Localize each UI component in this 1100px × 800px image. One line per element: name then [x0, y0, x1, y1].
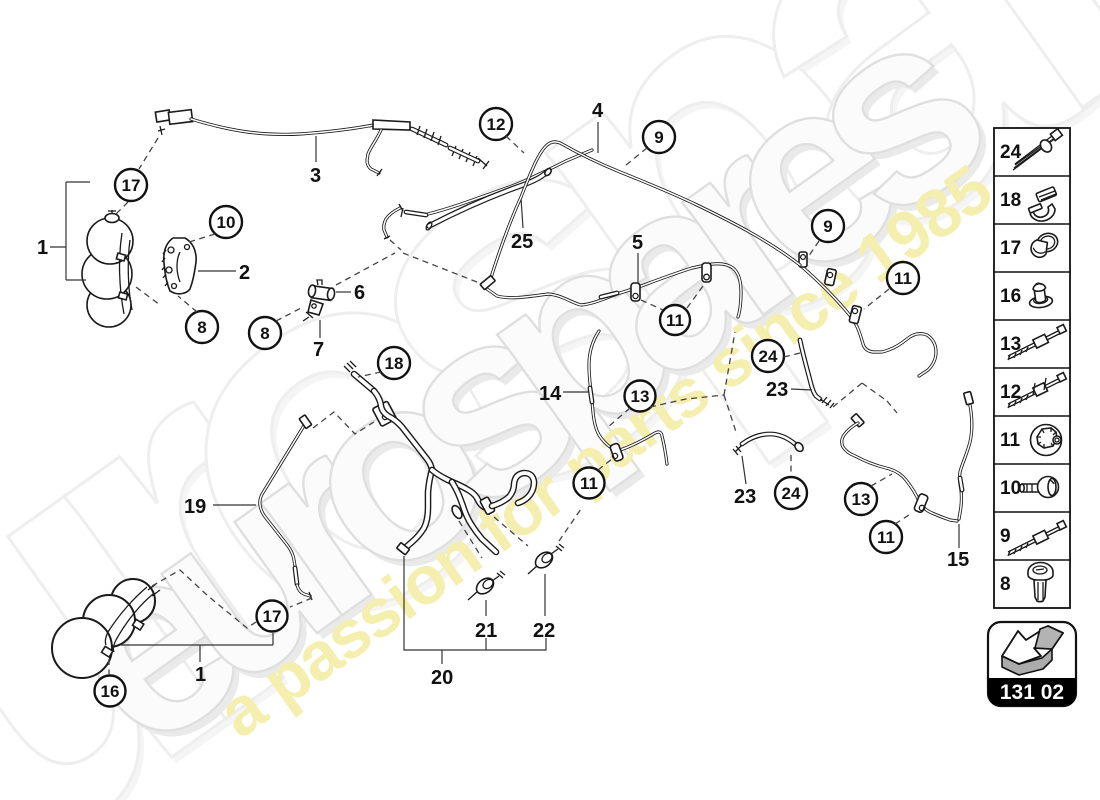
svg-text:11: 11 — [877, 528, 895, 547]
svg-text:16: 16 — [101, 682, 120, 701]
svg-text:8: 8 — [260, 324, 269, 343]
svg-text:2: 2 — [239, 262, 250, 284]
svg-text:131 02: 131 02 — [1000, 681, 1064, 704]
svg-text:7: 7 — [313, 339, 324, 361]
svg-text:18: 18 — [1000, 190, 1021, 211]
svg-text:18: 18 — [385, 354, 404, 373]
svg-text:17: 17 — [1000, 238, 1021, 259]
svg-text:24: 24 — [759, 347, 778, 366]
svg-text:13: 13 — [631, 387, 650, 406]
svg-text:13: 13 — [1000, 334, 1021, 355]
svg-text:1: 1 — [37, 237, 48, 259]
svg-text:10: 10 — [217, 213, 236, 232]
svg-text:22: 22 — [533, 620, 555, 642]
svg-text:20: 20 — [431, 667, 453, 689]
svg-text:6: 6 — [354, 282, 365, 304]
svg-text:12: 12 — [1000, 382, 1021, 403]
svg-text:16: 16 — [1000, 286, 1021, 307]
svg-text:17: 17 — [263, 607, 282, 626]
svg-text:14: 14 — [539, 383, 562, 405]
svg-text:23: 23 — [734, 486, 756, 508]
svg-text:11: 11 — [666, 311, 684, 330]
svg-text:5: 5 — [632, 232, 643, 254]
svg-text:11: 11 — [1000, 430, 1021, 451]
svg-text:4: 4 — [592, 100, 604, 122]
svg-text:24: 24 — [782, 484, 801, 503]
svg-text:1: 1 — [195, 664, 206, 686]
svg-text:15: 15 — [947, 549, 969, 571]
svg-text:25: 25 — [511, 231, 533, 253]
svg-text:9: 9 — [654, 128, 663, 147]
svg-text:17: 17 — [122, 176, 141, 195]
svg-text:12: 12 — [487, 115, 506, 134]
svg-text:9: 9 — [1000, 526, 1011, 547]
svg-text:10: 10 — [1000, 478, 1021, 499]
svg-text:11: 11 — [580, 474, 598, 493]
svg-text:23: 23 — [766, 379, 788, 401]
svg-text:24: 24 — [1000, 142, 1022, 163]
svg-text:11: 11 — [894, 269, 912, 288]
svg-text:13: 13 — [852, 490, 871, 509]
svg-text:9: 9 — [823, 217, 832, 236]
svg-text:8: 8 — [197, 318, 206, 337]
svg-text:8: 8 — [1000, 574, 1011, 595]
svg-text:3: 3 — [310, 165, 321, 187]
svg-text:19: 19 — [184, 496, 206, 518]
